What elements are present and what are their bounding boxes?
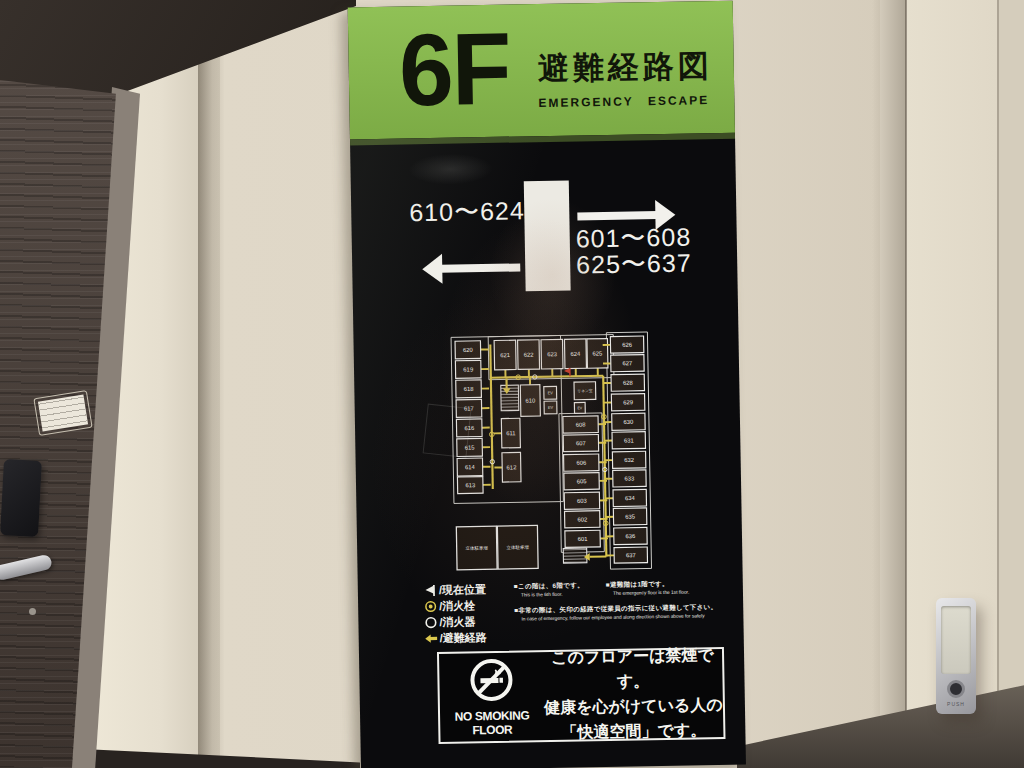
svg-text:601: 601 [578, 536, 588, 542]
wall-corner-shadow [198, 0, 224, 768]
svg-text:602: 602 [577, 516, 587, 522]
right-direction-rooms-2: 625〜637 [576, 246, 692, 281]
left-direction-arrow-icon [422, 252, 521, 284]
fire-extinguisher-icon [424, 615, 437, 628]
svg-text:EV: EV [577, 406, 582, 410]
header-title-block: 避難経路図 EMERGENCY ESCAPE [537, 45, 713, 110]
sign-title: 避難経路図 [537, 45, 713, 90]
no-smoking-notice: NO SMOKING FLOOR このフロアーは禁煙です。 健康を心がけている人… [437, 647, 726, 744]
svg-text:629: 629 [623, 399, 633, 405]
legend-current-position: /現在位置 [424, 581, 510, 598]
no-smoking-line: このフロアーは禁煙です。 [543, 643, 723, 696]
wall-far-right-panel [999, 0, 1024, 768]
note-jp: ■この階は、6階です。 [514, 581, 606, 592]
svg-text:630: 630 [623, 419, 634, 425]
svg-text:613: 613 [465, 482, 475, 488]
svg-text:EV: EV [548, 390, 554, 395]
note-emergency-floor: ■避難階は1階です。 The emergency floor is the 1s… [606, 579, 728, 598]
svg-text:614: 614 [465, 464, 476, 470]
left-direction-rooms: 610〜624 [409, 194, 525, 229]
svg-text:EV: EV [548, 405, 554, 410]
no-smoking-label: NO SMOKING FLOOR [440, 708, 544, 738]
svg-text:623: 623 [547, 351, 557, 357]
svg-text:635: 635 [625, 514, 636, 520]
svg-text:618: 618 [464, 386, 474, 392]
svg-text:636: 636 [625, 533, 635, 539]
svg-text:611: 611 [506, 430, 515, 436]
svg-text:617: 617 [464, 405, 474, 411]
no-smoking-text: このフロアーは禁煙です。 健康を心がけている人の 「快適空間」です。 [543, 643, 724, 745]
legend-escape-route: /避難経路 [425, 629, 511, 646]
current-position-flag-icon [424, 583, 437, 596]
svg-text:605: 605 [577, 478, 588, 484]
legend-label: /避難経路 [440, 630, 487, 646]
no-smoking-icon [468, 657, 515, 704]
escape-route-arrow-icon [425, 631, 438, 644]
map-legend: /現在位置 /消火栓 /消火器 /避難経路 [424, 581, 511, 646]
svg-text:607: 607 [576, 440, 586, 446]
legend-fire-extinguisher: /消火器 [424, 613, 510, 630]
floor-map: 6206196186176166156146136216226236246256… [429, 321, 697, 582]
svg-text:634: 634 [625, 495, 636, 501]
note-en: The emergency floor is the 1st floor. [606, 589, 728, 598]
svg-text:619: 619 [463, 366, 473, 372]
legend-label: /消火器 [439, 614, 475, 630]
svg-text:リネン室: リネン室 [577, 388, 592, 393]
svg-text:616: 616 [464, 425, 474, 431]
wall-push-plate[interactable]: PUSH [936, 598, 976, 714]
fire-hydrant-icon [424, 599, 437, 612]
svg-text:606: 606 [576, 460, 586, 466]
svg-text:633: 633 [624, 475, 634, 481]
no-smoking-line: 健康を心がけている人の [544, 693, 723, 721]
note-this-floor: ■この階は、6階です。 This is the 6th floor. [514, 581, 606, 599]
wall-seam-shadow [872, 0, 906, 768]
door-handle-screw [29, 608, 36, 615]
note-en: This is the 6th floor. [514, 591, 606, 599]
keyhole-icon [947, 680, 965, 698]
svg-text:622: 622 [524, 352, 534, 358]
emergency-escape-sign: 6F 避難経路図 EMERGENCY ESCAPE 610〜624 601〜60… [348, 1, 746, 768]
svg-text:628: 628 [623, 380, 633, 386]
sign-subtitle: EMERGENCY ESCAPE [538, 93, 713, 110]
legend-label: /消火栓 [439, 598, 475, 614]
note-in-case-of-emergency: ■非常の際は、矢印の経路で従業員の指示に従い避難して下さい。 In case o… [514, 603, 730, 623]
svg-text:615: 615 [465, 444, 476, 450]
legend-label: /現在位置 [439, 582, 486, 598]
svg-text:624: 624 [571, 351, 582, 357]
svg-text:620: 620 [463, 347, 474, 353]
door-card-lock[interactable] [0, 459, 42, 537]
svg-text:608: 608 [576, 422, 586, 428]
svg-text:626: 626 [622, 342, 632, 348]
svg-text:625: 625 [592, 350, 603, 356]
push-plate-label: PUSH [936, 701, 976, 707]
svg-text:631: 631 [624, 437, 634, 443]
elevator-hall-block [524, 181, 571, 292]
sign-notes: ■この階は、6階です。 This is the 6th floor. ■避難階は… [514, 579, 731, 624]
svg-text:610: 610 [525, 398, 536, 404]
svg-text:637: 637 [626, 552, 636, 558]
svg-text:603: 603 [577, 498, 587, 504]
legend-fire-hydrant: /消火栓 [424, 597, 510, 614]
svg-text:621: 621 [500, 352, 510, 358]
svg-text:627: 627 [622, 360, 632, 366]
push-plate-panel [941, 606, 971, 674]
floor-number: 6F [398, 13, 510, 127]
no-smoking-line: 「快適空間」です。 [544, 718, 723, 746]
svg-text:612: 612 [507, 464, 517, 470]
svg-text:632: 632 [624, 457, 634, 463]
sign-header: 6F 避難経路図 EMERGENCY ESCAPE [348, 1, 735, 140]
no-smoking-icon-column: NO SMOKING FLOOR [439, 656, 544, 738]
